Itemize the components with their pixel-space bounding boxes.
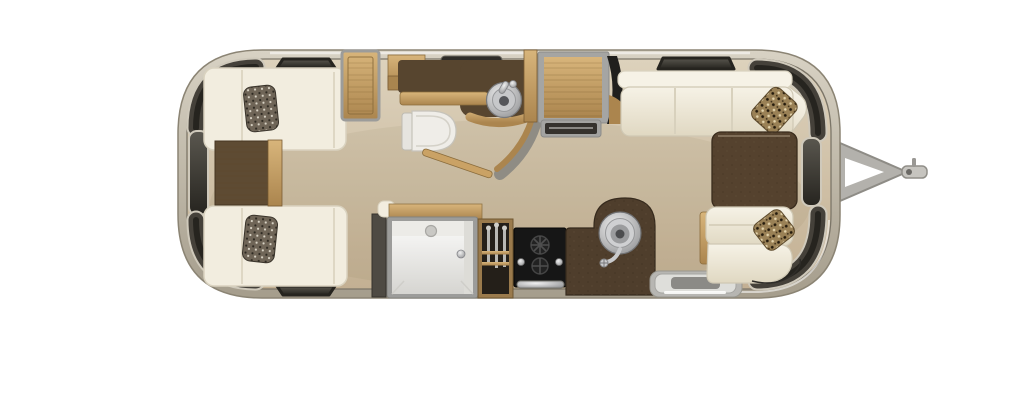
bed-pillow-bottom [242, 214, 279, 263]
vessel-sink-drain [499, 96, 509, 106]
vanity-front-edge [400, 92, 488, 105]
pantry-utensil-head-1 [486, 226, 491, 231]
pantry-utensil-head-2 [494, 223, 499, 228]
shower-drain [426, 226, 437, 237]
shower-control [457, 250, 465, 258]
wardrobe-interior [348, 57, 373, 114]
pantry-utensil-head-3 [502, 226, 507, 231]
toilet-tank [402, 113, 413, 150]
lounge-window-top [658, 58, 734, 69]
kitchen-sink-drain [616, 230, 625, 239]
bedroom-window-bottom [277, 286, 335, 295]
hitch-coupler [902, 166, 927, 178]
burner-grate-2 [532, 258, 548, 274]
floor-plan-canvas [0, 0, 1024, 411]
burner-grate-1 [531, 236, 549, 254]
sofa-top-backrest [618, 71, 792, 88]
trailer-floor-plan [0, 0, 1024, 411]
toilet [402, 111, 456, 151]
hitch-jack-wheel [906, 169, 912, 175]
nightstand-grain [215, 141, 268, 205]
sofa-bottom-chaise [707, 244, 792, 283]
pantry-utensil-2 [495, 226, 498, 268]
vanity-faucet-handle [510, 81, 517, 88]
stove-knob-right [556, 259, 563, 266]
bed-foot-divider-wall [372, 214, 386, 297]
cabinet-wood-strip [524, 50, 537, 122]
pantry-cabinet [478, 219, 513, 298]
pantry-utensil-3 [503, 229, 506, 267]
bedroom-window-top [277, 59, 335, 68]
shower-stall [387, 217, 478, 298]
shower-wall-shade [464, 221, 473, 294]
pantry-utensil-1 [487, 229, 490, 265]
entry-step-glow [664, 291, 726, 294]
stove-knob-left [518, 259, 525, 266]
coffee-table-speckle [712, 132, 797, 209]
nightstand-wood-side [268, 140, 282, 206]
pantry-rail-2 [482, 262, 509, 266]
oven-handle [517, 281, 564, 288]
cooktop-oven [514, 228, 566, 288]
bed-pillow-top [243, 84, 280, 132]
hitch-jack-pin [912, 158, 916, 167]
pantry-rail-1 [482, 251, 509, 255]
cabinet-wood-grain [544, 57, 602, 118]
hitch-assembly [840, 143, 927, 201]
window-front-wall [802, 138, 821, 206]
